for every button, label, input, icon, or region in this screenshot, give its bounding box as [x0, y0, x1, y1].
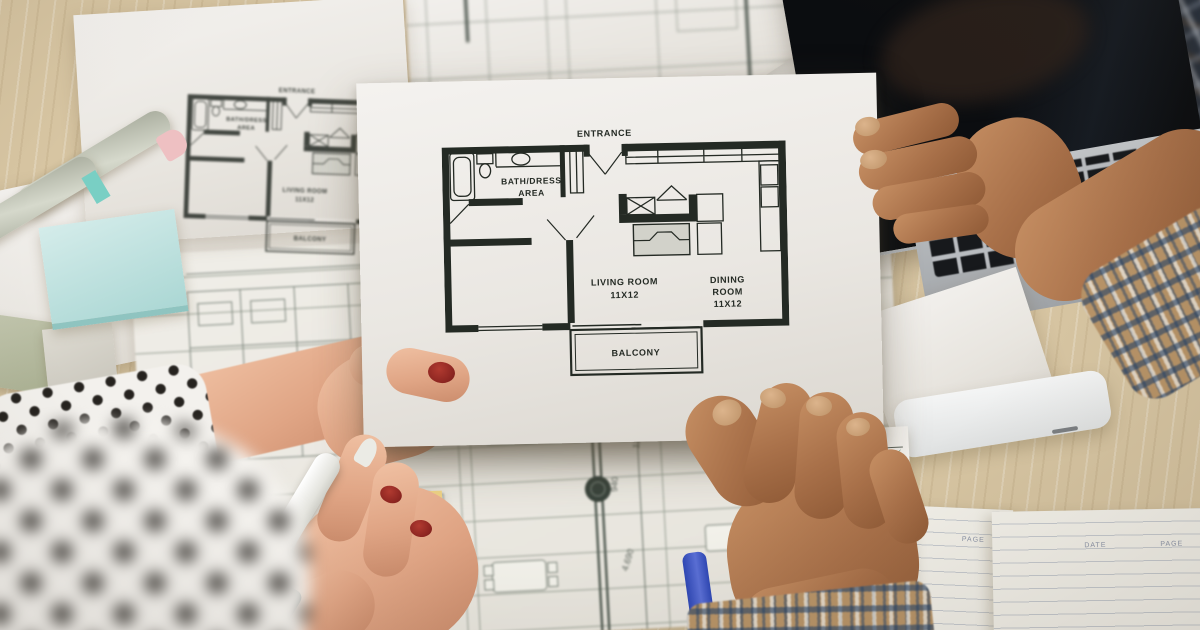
floor-plan-drawing: ENTRANCE BATH/DRESS AREA LIVING ROOM 11X… — [441, 119, 790, 388]
label-bath-2: AREA — [518, 188, 545, 199]
label-dining-2: ROOM — [712, 286, 743, 297]
notebook-page-label: PAGE — [962, 536, 985, 544]
label-bath-1: BATH/DRESS — [501, 175, 562, 186]
label-dining-1: DINING — [710, 274, 745, 285]
notebook-page-label: PAGE — [1160, 541, 1183, 548]
label-balcony: BALCONY — [611, 347, 660, 358]
sticky-notes-blue — [38, 209, 188, 330]
notebook-page-right: DATE PAGE — [992, 508, 1200, 630]
label-bath-2: AREA — [237, 125, 255, 132]
label-dining-size: 11X12 — [714, 298, 743, 309]
notebook-date-label: DATE — [1084, 542, 1106, 549]
dimension-label-lower: 4.690 — [620, 548, 636, 572]
label-entrance: ENTRANCE — [279, 88, 316, 95]
label-entrance: ENTRANCE — [577, 128, 632, 139]
label-living-size: 11X12 — [295, 197, 315, 204]
column-marker — [584, 475, 611, 502]
label-living-room: LIVING ROOM — [282, 188, 327, 196]
label-balcony: BALCONY — [294, 236, 327, 243]
label-bath-1: BATH/DRESS — [226, 117, 267, 124]
photo-scene: 12.790 940 4.690 — [0, 0, 1200, 630]
label-living-size: 11X12 — [610, 290, 639, 301]
dimension-label-column: 940 — [609, 477, 620, 493]
label-living-room: LIVING ROOM — [591, 276, 658, 287]
